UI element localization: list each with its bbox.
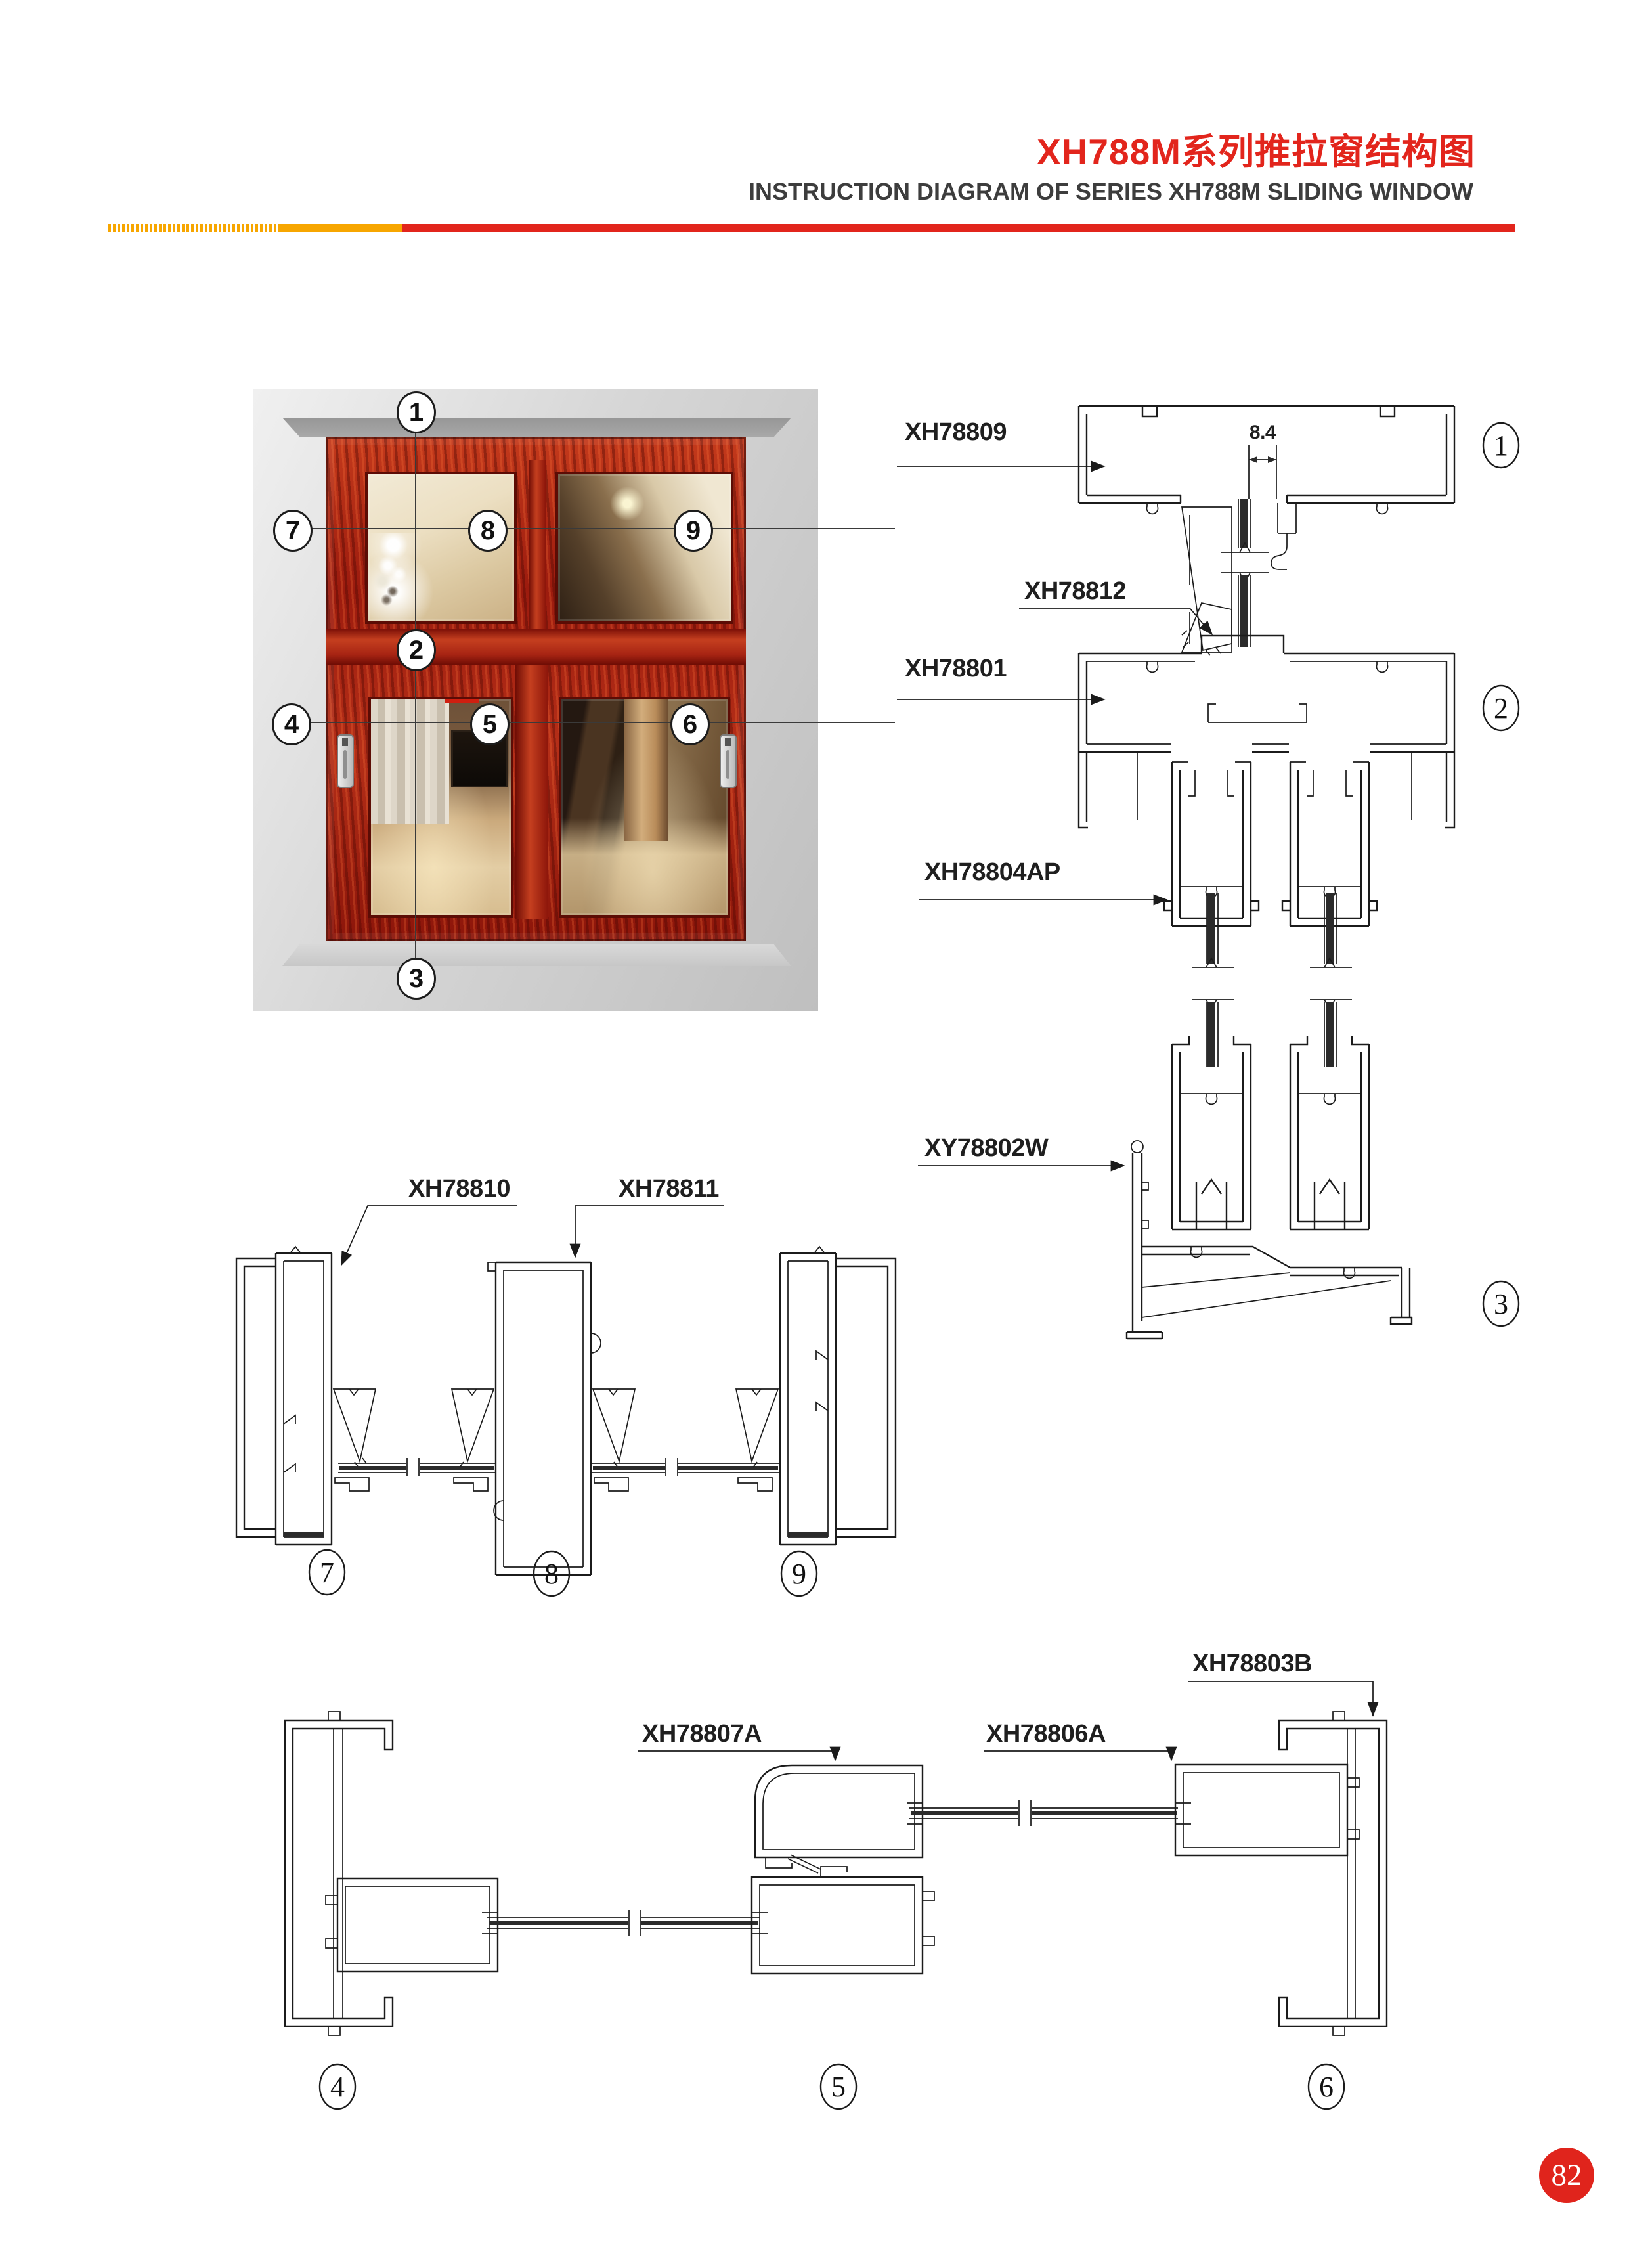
transom-profile [1079,636,1454,828]
callout-5: 5 [470,703,510,745]
decorative-bar [108,224,1515,232]
label-xh78803b: XH78803B [1192,1650,1312,1677]
interior-column [624,699,668,841]
leader-vertical-center [415,410,416,958]
center-mullion-profile [452,1262,635,1575]
sash-handle-right [720,734,737,788]
window-photo: 1 2 3 4 5 6 7 8 9 [253,389,818,1011]
leader-horizontal-mid [291,722,895,723]
dimension-text: 8.4 [1250,422,1276,443]
transom-section-drawing: XH78810 XH78811 7 8 9 [210,1169,906,1629]
section-circle-7: 7 [320,1557,334,1589]
label-xh78810: XH78810 [408,1175,510,1203]
callout-6: 6 [670,703,710,745]
meeting-stile [515,665,548,919]
sash-section-drawing: XH78807A XH78806A XH78803B 4 5 6 [263,1642,1418,2141]
wall-bevel-top [282,418,791,437]
section-circle-4: 4 [330,2071,345,2103]
curtains [371,699,449,824]
label-xh78804ap: XH78804AP [924,858,1060,886]
leader-horizontal-top [292,528,895,529]
callout-1: 1 [397,391,436,433]
page-number-badge: 82 [1539,2148,1594,2203]
label-xh78801: XH78801 [905,655,1007,682]
label-xh78812: XH78812 [1024,577,1126,605]
wall-bevel-bottom [282,944,791,966]
barcode-pattern [108,224,280,232]
callout-2: 2 [397,629,436,671]
right-jamb-profile [736,1247,896,1545]
callout-7: 7 [273,510,313,552]
label-xh78811: XH78811 [619,1175,719,1203]
page-number: 82 [1552,2158,1582,2193]
page-title: XH788M系列推拉窗结构图 [1037,134,1475,170]
left-jamb-profile-bottom [285,1712,393,2035]
vertical-section-drawing: 8.4 [893,368,1556,1360]
chandelier [370,533,438,619]
dimension-8-4: 8.4 [1249,422,1276,499]
sash-handle-left [337,734,354,788]
right-jamb-profile-bottom [1279,1712,1387,2035]
red-bar [402,224,1515,232]
section-circle-9: 9 [792,1558,806,1590]
section-circle-5: 5 [831,2071,846,2103]
top-mullion [529,460,546,629]
middle-lower-sash-profile [752,1877,934,1974]
section-circle-1: 1 [1494,430,1508,462]
left-sash-profile [326,1878,498,1972]
section-circle-2: 2 [1494,692,1508,724]
label-xh78806a: XH78806A [986,1720,1106,1748]
yellow-bar [280,224,402,232]
catalog-page: XH788M系列推拉窗结构图 INSTRUCTION DIAGRAM OF SE… [0,0,1652,2258]
page-subtitle: INSTRUCTION DIAGRAM OF SERIES XH788M SLI… [749,180,1473,204]
upper-sash-profile [755,1765,923,1857]
section-circle-3: 3 [1494,1288,1508,1320]
red-section-mark [445,699,479,703]
label-xh78809: XH78809 [905,418,1007,446]
callout-3: 3 [397,958,436,1000]
label-xy78802w: XY78802W [924,1134,1049,1162]
right-sash-profile [1175,1765,1359,1855]
label-xh78807a: XH78807A [642,1720,762,1748]
callout-8: 8 [468,510,508,552]
callout-4: 4 [272,703,311,745]
section-circle-6: 6 [1319,2071,1334,2103]
callout-9: 9 [674,510,713,552]
fixed-pane-right [555,472,733,624]
left-jamb-profile [236,1247,376,1545]
transom-rail [326,629,746,665]
section-circle-8: 8 [544,1558,559,1590]
